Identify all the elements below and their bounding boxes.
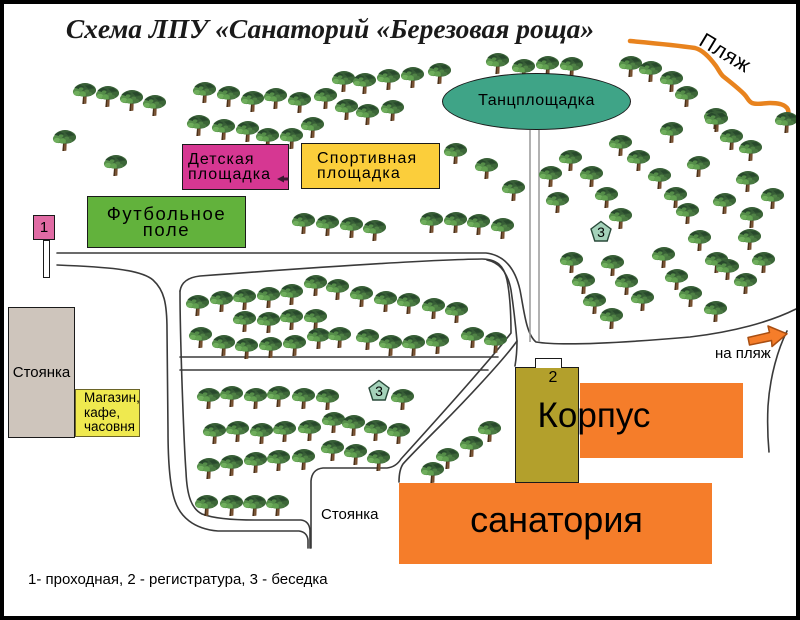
svg-text:3: 3 bbox=[597, 224, 605, 240]
svg-text:3: 3 bbox=[375, 383, 383, 399]
